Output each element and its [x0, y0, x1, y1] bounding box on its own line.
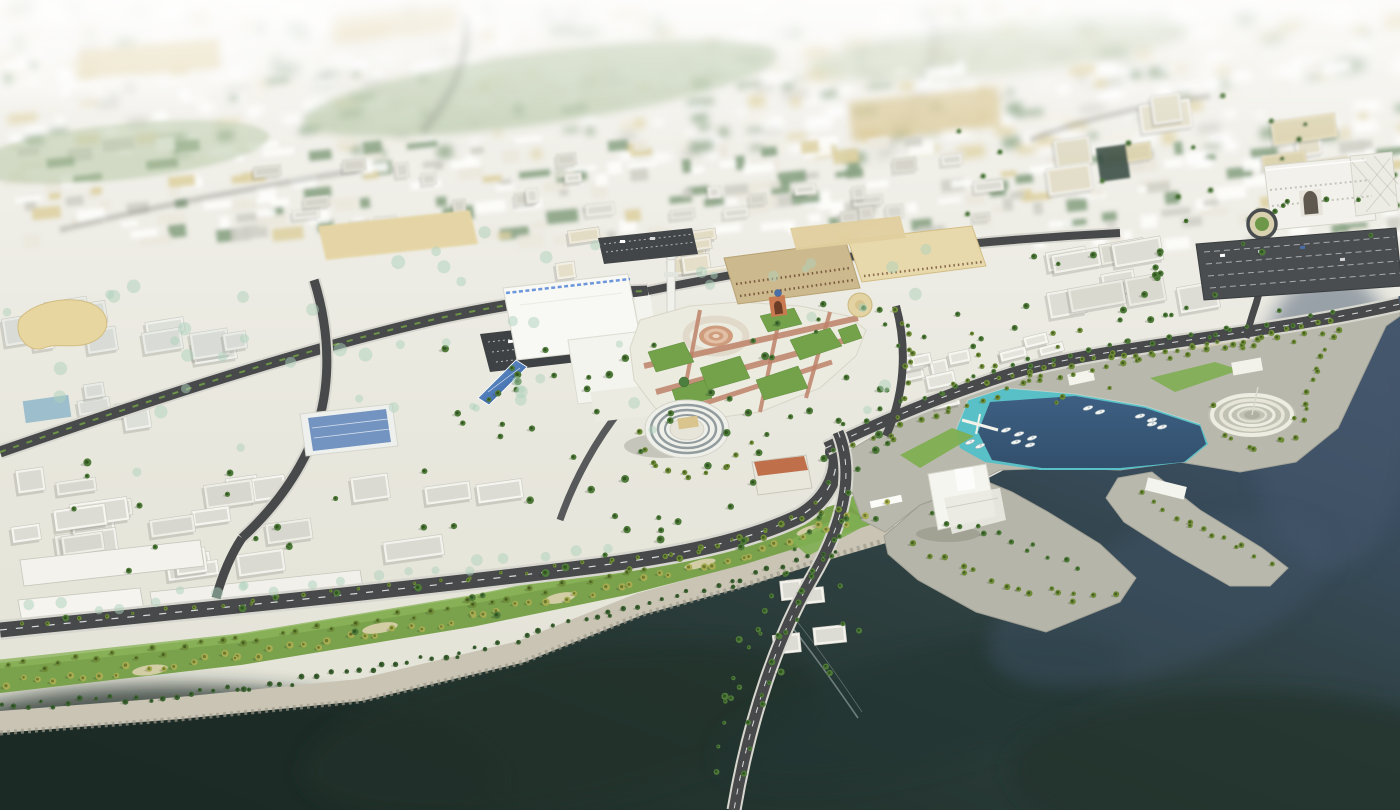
tree [806, 312, 816, 322]
tree [56, 597, 67, 608]
tree [306, 303, 319, 316]
tree [508, 316, 518, 326]
tree [603, 544, 612, 553]
tree [616, 340, 623, 347]
tree [404, 567, 412, 575]
tree [442, 338, 451, 347]
tree [512, 376, 522, 386]
tree [105, 290, 114, 299]
car [508, 340, 513, 344]
tree [431, 246, 441, 256]
tree [336, 577, 345, 586]
minaret-balcony [664, 272, 678, 277]
tree [431, 566, 439, 574]
tree [240, 581, 249, 590]
car [1340, 258, 1345, 261]
car [620, 240, 625, 243]
tree [710, 272, 717, 279]
tree [628, 397, 640, 409]
tree [515, 394, 527, 406]
tree [863, 406, 872, 415]
tree [465, 566, 474, 575]
tree [176, 586, 184, 594]
tree [178, 322, 191, 335]
tree [471, 554, 483, 566]
tree [648, 426, 656, 434]
masterplan-aerial-render [0, 0, 1400, 810]
tree [151, 598, 161, 608]
tree [359, 348, 373, 362]
tree [218, 352, 228, 362]
tree [396, 340, 405, 349]
tree [478, 226, 490, 238]
car [1300, 246, 1305, 249]
tree [528, 317, 539, 328]
tree [114, 604, 124, 614]
tree [886, 261, 898, 273]
tree [237, 291, 249, 303]
car [1220, 254, 1225, 257]
scene-svg [0, 0, 1400, 810]
tree [285, 357, 296, 368]
tree [571, 545, 582, 556]
tree [535, 374, 545, 384]
tree [181, 384, 191, 394]
plaza-pond [679, 377, 689, 387]
tree [391, 255, 405, 269]
tree [879, 379, 891, 391]
tree [95, 606, 103, 614]
tree [355, 395, 363, 403]
tree [181, 349, 194, 362]
tree [154, 405, 167, 418]
tree [590, 240, 600, 250]
tree [437, 260, 450, 273]
tree [333, 343, 346, 356]
tree [23, 599, 34, 610]
tree [132, 467, 141, 476]
tree [374, 570, 385, 581]
tree [469, 403, 476, 410]
tree [705, 280, 715, 290]
tree [389, 402, 399, 412]
tree [806, 258, 816, 268]
tree [54, 362, 67, 375]
tree [517, 386, 525, 394]
tree [3, 308, 12, 317]
tree [127, 279, 141, 293]
blue-dome [775, 290, 782, 297]
tree [308, 580, 317, 589]
tree [236, 443, 244, 451]
tree [170, 336, 179, 345]
tree [858, 303, 867, 312]
tree [240, 334, 249, 343]
tree [211, 587, 223, 599]
tree [540, 251, 553, 264]
tree [920, 244, 931, 255]
tree [768, 271, 779, 282]
tree [909, 288, 922, 301]
tree [498, 553, 509, 564]
tree [53, 390, 66, 403]
tree [541, 552, 551, 562]
tree [456, 277, 466, 287]
tree [696, 266, 707, 277]
car [650, 237, 655, 240]
haze-overlay [0, 0, 1400, 160]
